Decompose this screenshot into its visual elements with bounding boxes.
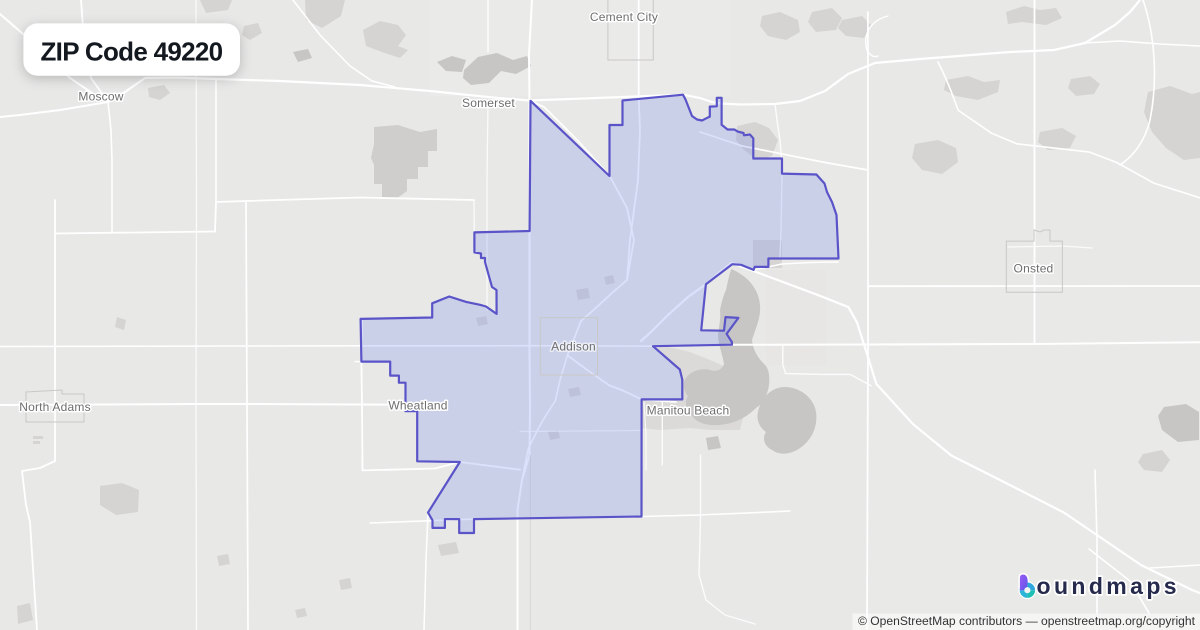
svg-text:Addison: Addison	[551, 339, 596, 353]
svg-text:Wheatland: Wheatland	[388, 398, 447, 412]
svg-text:Moscow: Moscow	[78, 90, 123, 104]
svg-text:Onsted: Onsted	[1014, 261, 1054, 275]
svg-text:Cement City: Cement City	[590, 10, 658, 24]
svg-text:oundmaps: oundmaps	[1037, 573, 1180, 599]
svg-text:© OpenStreetMap contributors —: © OpenStreetMap contributors — openstree…	[858, 616, 1196, 628]
svg-text:ZIP Code 49220: ZIP Code 49220	[41, 37, 223, 67]
svg-text:Manitou Beach: Manitou Beach	[647, 404, 730, 418]
svg-text:North Adams: North Adams	[19, 400, 91, 414]
svg-text:Somerset: Somerset	[462, 96, 515, 110]
